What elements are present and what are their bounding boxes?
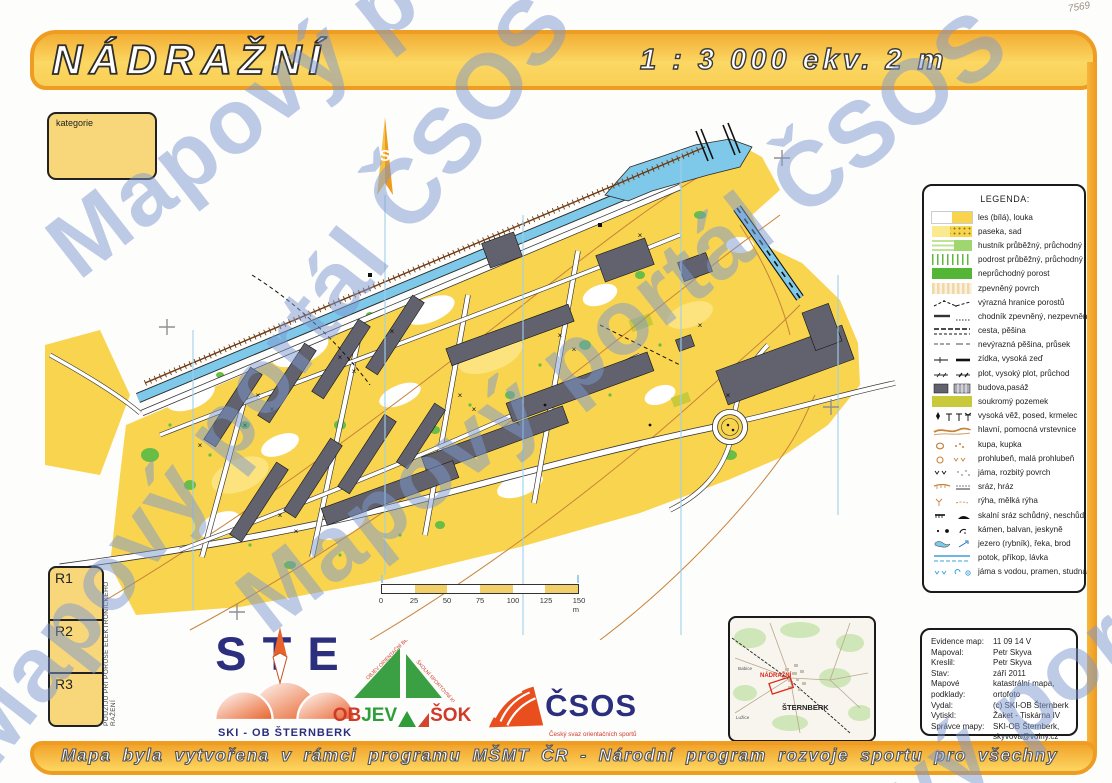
objev-sok-mountains-icon: OBJEV ORIENTAČNÍ BĚH ŠKOLNÍ SPORTOVNÍ KL… [338,640,466,702]
compass-needle-icon [272,627,288,685]
svg-text:×: × [458,391,463,400]
svg-text:×: × [243,421,248,430]
scalebar-labels: 0 25 50 75 100 125 150 m [381,596,579,606]
svg-text:×: × [558,331,563,340]
svg-text:×: × [472,405,477,414]
csos-logo: ČSOS Český svaz orientačních sportů [487,682,637,738]
legend-symbol-skalni-sraz [932,510,972,521]
legend-symbol-sraz-hraz [932,481,972,492]
scalebar-strip [381,584,579,594]
legend-symbol-hustnik [932,240,972,251]
legend-symbol-les-louka [932,212,972,223]
legend-symbol-chodnik [932,311,972,322]
inset-area-label: NÁDRAŽNÍ [760,671,792,679]
green-triangle-icon [398,711,416,727]
legend-box: LEGENDA: les (bílá), louka paseka, sad h… [922,184,1086,593]
legend-symbol-zpevneny-povrch [932,283,972,294]
svg-text:×: × [390,327,395,336]
inset-town-label: ŠTERNBERK [782,703,829,712]
north-arrow-label: S [380,148,391,165]
csos-logo-caption: Český svaz orientačních sportů [549,731,637,738]
legend-symbol-kamen [932,524,972,535]
legend-symbol-ryha [932,495,972,506]
svg-text:×: × [278,511,283,520]
legend-symbol-budova-pasaz [932,382,972,393]
legend-symbol-zidka-zed [932,353,972,364]
legend-title: LEGENDA: [932,194,1078,204]
map-sheet: NÁDRAŽNÍ 1 : 3 000 ekv. 2 m 7569 kategor… [0,0,1112,783]
legend-symbol-cesta-pesina [932,325,972,336]
map-scale-text: 1 : 3 000 ekv. 2 m [640,44,947,77]
svg-text:×: × [256,391,261,400]
legend-symbol-plot [932,368,972,379]
punch-box-r1: R1 [48,566,104,621]
legend-symbol-vez-posed-krmelec [932,410,972,421]
punch-boxes-note: POUŽIJU PŘI PORUŠE ELEKTRONICKÉHO RAŽENÍ [103,568,117,726]
punch-box-r3: R3 [48,672,104,727]
svg-text:×: × [198,441,203,450]
scalebar-tick-right [577,575,579,583]
svg-text:×: × [698,321,703,330]
objev-sok-logo: OBJEV ORIENTAČNÍ BĚH ŠKOLNÍ SPORTOVNÍ KL… [338,640,466,727]
legend-symbol-kupa [932,439,972,450]
svg-text:×: × [338,353,343,362]
svg-text:×: × [726,391,731,400]
inset-village-label: Babice [738,666,752,671]
inset-village-label: Lužice [736,715,750,720]
legend-symbol-podrost [932,254,972,265]
svg-text:×: × [294,527,299,536]
ste-logo-caption: SKI - OB ŠTERNBERK [205,727,365,739]
punch-boxes: R1 R2 R3 [48,566,100,727]
map-info-box: Evidence map:11 09 14 V Mapoval:Petr Sky… [920,628,1078,736]
orienteering-map: S ×× ×× ×× ×× ×× ×× ×× ×× [40,95,920,640]
legend-symbol-potok [932,552,972,563]
legend-symbol-jama-s-vodou [932,566,972,577]
map-title: NÁDRAŽNÍ [52,36,327,84]
svg-text:×: × [352,367,357,376]
scalebar-tick-left [381,575,383,583]
legend-symbol-prohluben [932,453,972,464]
objev-sok-wordmark: OBJEV ŠOK [338,705,466,727]
svg-text:×: × [270,405,275,414]
svg-text:×: × [638,231,643,240]
location-inset: NÁDRAŽNÍ ŠTERNBERK Babice Lužice [728,616,876,742]
legend-symbol-jama [932,467,972,478]
scalebar: 0 25 50 75 100 125 150 m [381,584,579,606]
punch-box-r2: R2 [48,619,104,674]
handwritten-note: 7569 [1067,0,1091,15]
red-triangle-icon [418,713,429,727]
legend-symbol-vrstevnice [932,424,972,435]
csos-logo-name: ČSOS [545,691,637,721]
legend-symbol-nevyrazna-pesina [932,339,972,350]
legend-symbol-paseka-sad [932,226,972,237]
north-arrow: S [377,117,393,195]
csos-swoosh-icon [487,682,545,730]
legend-symbol-jezero [932,538,972,549]
footer-text: Mapa byla vytvořena v rámci programu MŠM… [30,745,1089,766]
legend-symbol-nepruchodny-porost [932,268,972,279]
legend-symbol-soukromy-pozemek [932,396,972,407]
legend-symbol-hranice-porostu [932,297,972,308]
svg-text:×: × [572,345,577,354]
frame-right-border [1087,62,1097,752]
inset-map: NÁDRAŽNÍ ŠTERNBERK Babice Lužice [730,618,870,736]
